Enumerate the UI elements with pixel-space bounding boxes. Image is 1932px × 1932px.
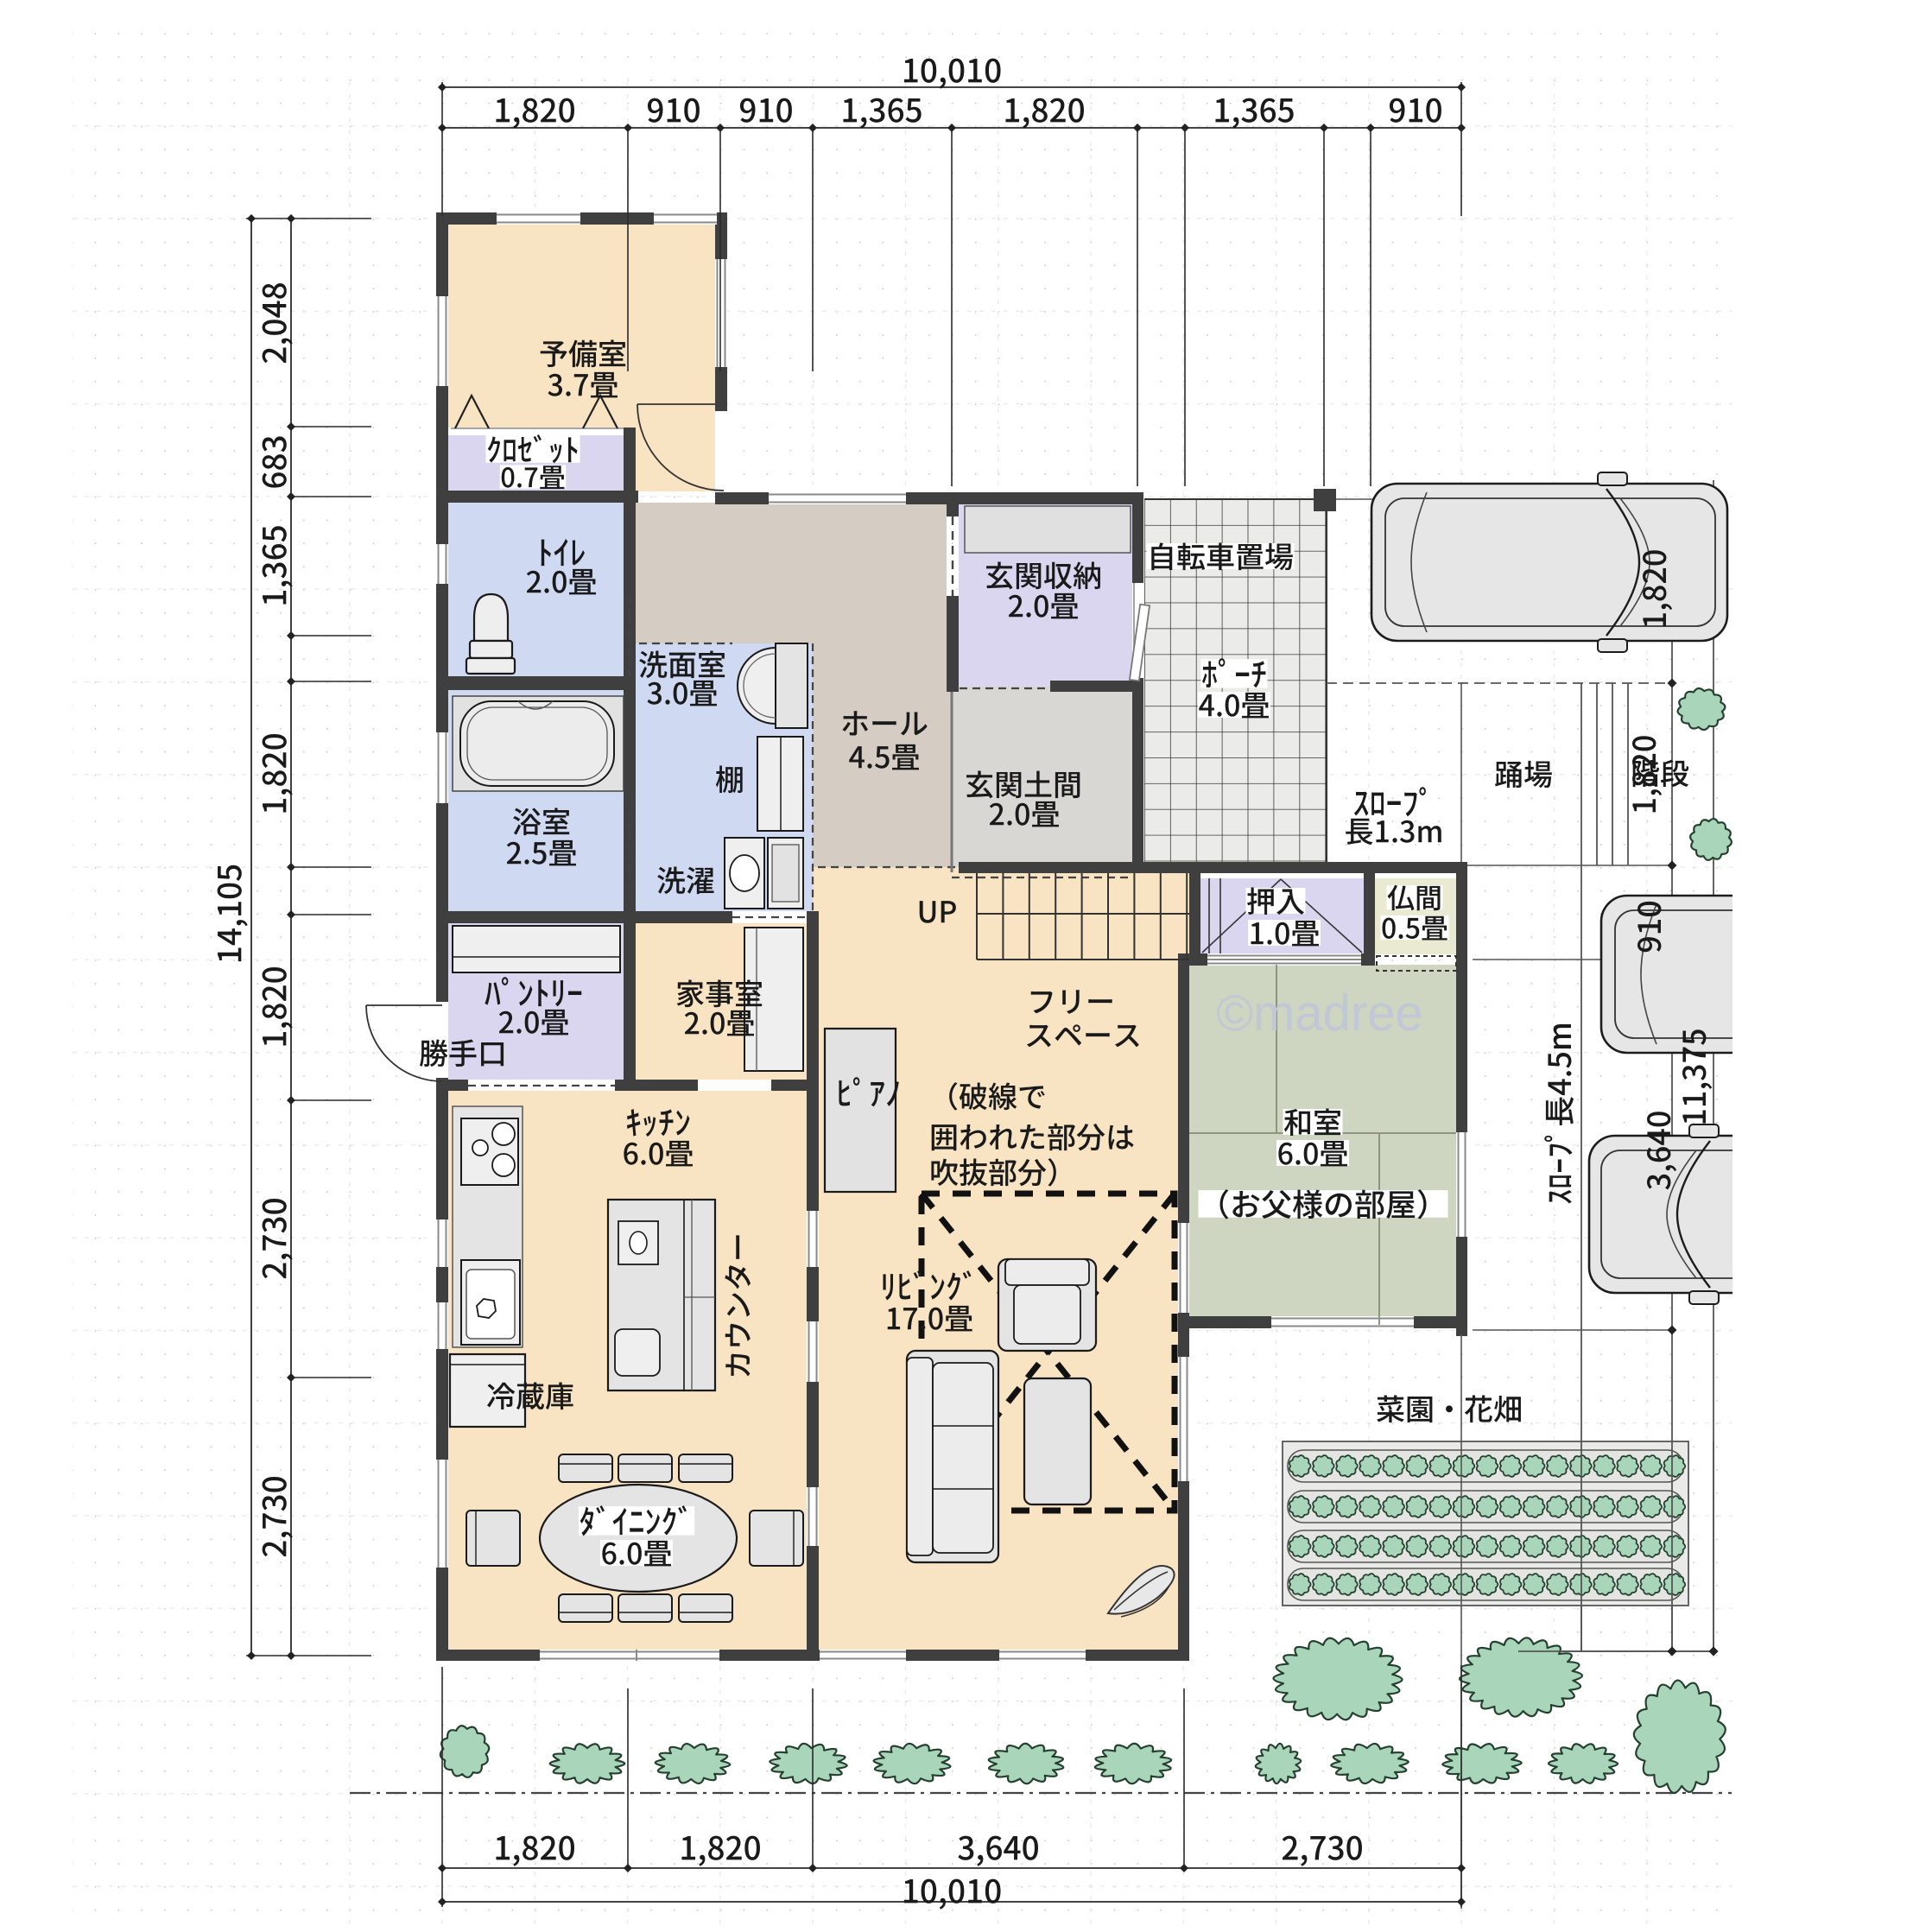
svg-text:©madree: ©madree — [1216, 985, 1422, 1042]
